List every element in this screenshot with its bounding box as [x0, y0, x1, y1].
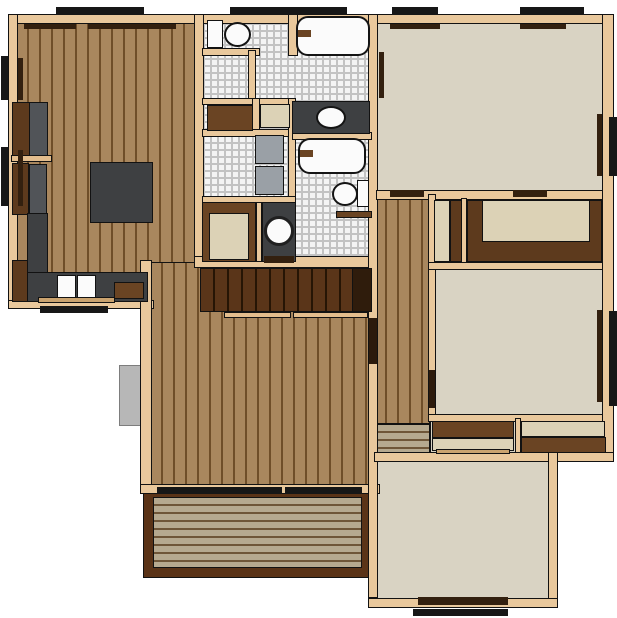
closet-narrow-door [450, 200, 462, 262]
toilet2-bowl [332, 182, 358, 206]
window-top-d [520, 7, 584, 15]
door-bedroomtr-a [390, 190, 424, 197]
door-hall-living [369, 318, 377, 364]
linen-shelf-beige [260, 104, 290, 128]
sink-basin-left [57, 275, 76, 299]
stair-railing-left [224, 312, 291, 318]
bedroom-top-right-floor [376, 22, 604, 194]
wall-closet-row-bottom [428, 262, 606, 270]
toilet1-bowl [224, 22, 251, 47]
tub2-faucet [300, 150, 313, 157]
entry-steps [376, 424, 430, 454]
sill-bedroomtr-left [379, 52, 384, 98]
door-bath-hall [264, 256, 294, 263]
sill-bedroommr-right [597, 310, 602, 402]
deck-planks [153, 497, 362, 568]
window-top-c [392, 7, 438, 15]
tub1-faucet [298, 30, 311, 37]
closet2-right-floor [521, 421, 605, 437]
window-left-b [1, 147, 8, 206]
window-kitchen-south [40, 306, 108, 313]
sink-basin-right [77, 275, 96, 299]
door-deck-a [157, 487, 282, 494]
kitchen-counter-left [27, 213, 48, 275]
door-bedroombr [418, 597, 508, 605]
sill-bedroomtr-top-b [520, 24, 566, 29]
sill-left-b [18, 150, 23, 206]
closet-bath-floor [209, 213, 249, 260]
toilet2-tank [357, 180, 369, 207]
toilet1-tank [207, 20, 223, 48]
refrigerator [29, 102, 48, 156]
sill-bedroomtr-right [597, 114, 602, 176]
dryer [255, 166, 284, 195]
sill-kitchen-top-b [88, 24, 176, 29]
floor-plan [0, 0, 617, 618]
closet2-left-bar [436, 449, 510, 454]
closet-wide-floor [482, 200, 590, 242]
bedroom-bottom-right-floor [376, 456, 552, 602]
wall-step-right [552, 452, 614, 462]
washer [255, 135, 284, 164]
window-top-b [230, 7, 347, 15]
closet-narrow-floor [434, 200, 450, 262]
vanity1-sink [316, 106, 346, 129]
window-top-a [56, 7, 144, 15]
half-wall [336, 211, 372, 218]
door-bedroomtr-b [513, 190, 547, 197]
sill-kitchen-top-a [24, 24, 76, 29]
stair-railing-right [293, 312, 368, 318]
door-bedroommr [429, 370, 435, 408]
window-right-b [609, 311, 617, 406]
staircase [200, 268, 372, 312]
sill-bedroomtr-top-a [390, 24, 440, 29]
bedroom-mid-right-floor [430, 268, 604, 418]
appliance-oven [29, 164, 47, 214]
sill-left-a [18, 58, 23, 100]
window-left-a [1, 56, 8, 100]
hallway-floor [374, 194, 430, 424]
counter-edge [38, 297, 115, 303]
vanity2-sink [264, 216, 294, 246]
stoop-south [413, 609, 508, 616]
wall-east-lower [548, 452, 558, 608]
cabinet-corner [12, 260, 28, 302]
door-deck-b [285, 487, 362, 494]
window-right-a [609, 117, 617, 176]
staircase-end [352, 268, 372, 312]
cutting-board [114, 282, 144, 299]
linen-shelf-brown [207, 105, 253, 131]
closet2-left-shelf [432, 421, 514, 438]
kitchen-island [90, 162, 153, 223]
closet2-right-shelf [521, 437, 606, 453]
